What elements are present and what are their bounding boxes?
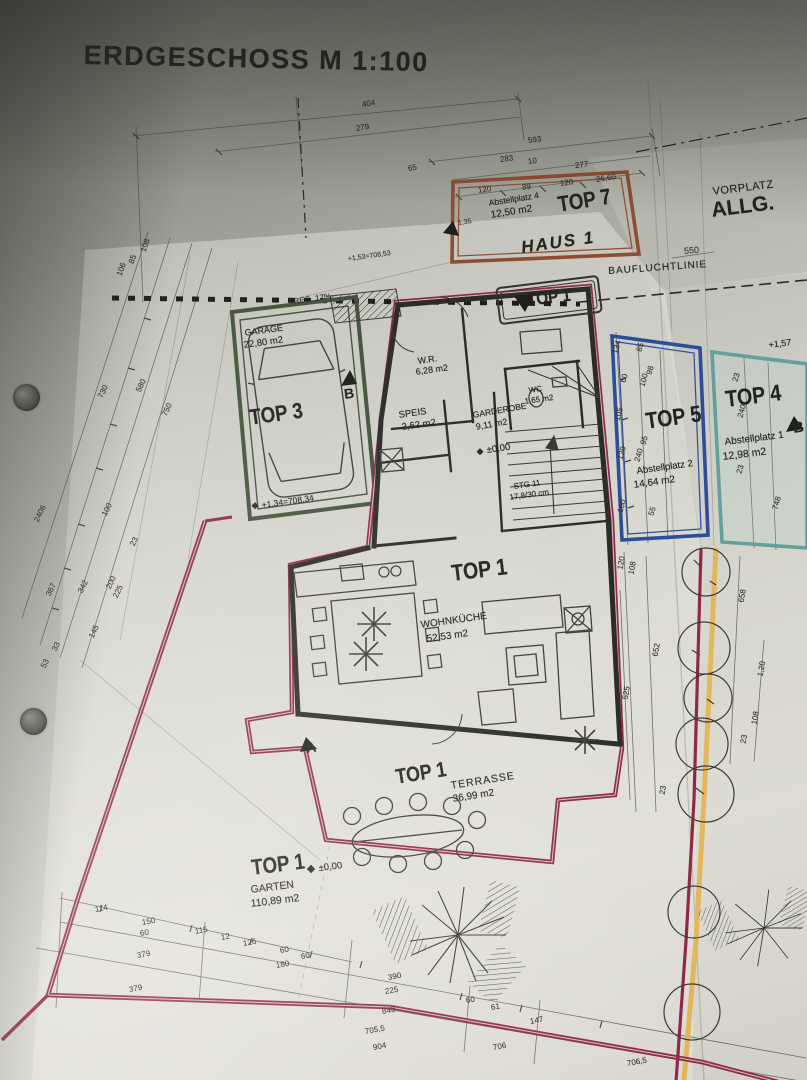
dimension-label: 652 [651, 643, 662, 658]
garten-name: TOP 1 [250, 848, 306, 880]
dimension-label: 23 [731, 372, 742, 383]
dimension-label: 705,5 [364, 1024, 385, 1036]
top3-name: TOP 3 [248, 398, 304, 431]
dimension-label: 98 [645, 365, 656, 376]
top1-main-room: WOHNKÜCHE [420, 611, 488, 631]
hole-punch [13, 384, 40, 411]
dimension-label: 730 [96, 384, 110, 400]
dimension-label: 10 [527, 156, 537, 166]
dimension-label: 1,20 [756, 660, 768, 677]
dimension-label: 33 [50, 641, 62, 653]
dimension-label: 367 [44, 582, 58, 598]
dimension-label: 126 [242, 937, 257, 948]
top4-name: TOP 4 [724, 379, 783, 413]
dimension-label: 904 [372, 1041, 387, 1052]
dimension-label: 23 [658, 785, 668, 795]
dimension-label: 100 [638, 372, 650, 387]
dimension-label: 23 [739, 734, 749, 744]
garderobe-area: 9,11 m2 [475, 416, 508, 431]
dimension-label: 105 [613, 406, 625, 421]
dimension-label: 550 [684, 245, 700, 256]
dimension-label: 706,5 [626, 1056, 647, 1068]
dimension-label: 750 [160, 402, 174, 418]
dimension-label: 65 [407, 163, 417, 173]
dimension-label: 60 [465, 995, 475, 1005]
dimension-label: +1,53=708,53 [348, 250, 392, 263]
dimension-label: 60 [619, 373, 630, 384]
garderobe-level: ±0,00 [486, 442, 511, 456]
dimension-label: 120 [477, 184, 491, 195]
dimension-label: 12 [220, 932, 230, 942]
dimension-label: 525 [621, 686, 632, 701]
dimension-label: 225 [384, 985, 399, 996]
dimension-label: 55 [647, 506, 658, 517]
hole-punch [20, 708, 47, 735]
top4-area: 12,98 m2 [722, 446, 767, 463]
dimension-label: 134 [611, 339, 623, 354]
dimension-label: 2406 [32, 504, 48, 524]
dimension-label: 108 [627, 561, 638, 576]
dimension-label: 390 [387, 971, 402, 982]
dimension-label: 1,35 [458, 218, 472, 227]
bauflucht-label: BAUFLUCHTLINIE [608, 259, 708, 277]
page-title: ERDGESCHOSS M 1:100 [83, 40, 429, 78]
section-marker-a: A [305, 739, 317, 756]
dimension-label: 114 [94, 903, 108, 914]
dimension-label: 120 [616, 445, 628, 460]
top1-main-area: 52,53 m2 [426, 628, 469, 645]
dimension-label: 580 [134, 378, 148, 394]
dimension-label: 95 [639, 435, 650, 446]
dimension-label: 53 [39, 658, 51, 670]
top5-area: 14,64 m2 [633, 474, 676, 491]
dimension-label: 60 [300, 951, 310, 961]
section-marker-b2: B [792, 418, 805, 436]
top4-room: Abstellplatz 1 [724, 430, 784, 448]
dimension-label: 279 [355, 122, 370, 133]
top7-name: TOP 7 [556, 184, 613, 218]
dimension-label: 180 [275, 959, 290, 970]
haus-label: HAUS 1 [520, 228, 596, 258]
dimension-label: 108 [139, 237, 152, 253]
dimension-label: 147 [529, 1015, 544, 1026]
garage-ramp-label: REG. 17% [293, 292, 332, 306]
dimension-label: 145 [87, 624, 101, 640]
dimension-label: 120 [559, 177, 573, 188]
plan-labels: ERDGESCHOSS M 1:100 VORPLATZ ALLG. BAUFL… [0, 0, 807, 1080]
dimension-label: 240 [633, 447, 645, 462]
top5-name: TOP 5 [644, 400, 703, 435]
dimension-label: 60 [139, 928, 149, 938]
dimension-label: 60 [279, 945, 289, 955]
dimension-label: 379 [128, 983, 143, 994]
section-marker-b1: B [343, 385, 355, 402]
dimension-label: 843 [381, 1005, 396, 1016]
dimension-label: 379 [136, 949, 151, 960]
dimension-label: 100 [100, 502, 114, 518]
top1-entry-name: TOP 1 [526, 285, 572, 311]
dimension-label: 26,60 [595, 172, 616, 184]
terrasse-name: TOP 1 [394, 758, 448, 790]
wc-name: WC [528, 384, 542, 395]
dimension-label: 61 [490, 1002, 500, 1012]
top3-level: +1,34=708,34 [261, 493, 314, 510]
top1-main-name: TOP 1 [450, 553, 509, 587]
dimension-label: 658 [737, 589, 748, 604]
dimension-label: 115 [194, 925, 208, 936]
dimension-label: 240 [736, 403, 748, 418]
garten-level: ±0,00 [318, 860, 343, 874]
dimension-label: 150 [141, 916, 156, 927]
dimension-label: 404 [361, 98, 376, 109]
dimension-label: 342 [76, 579, 90, 595]
dimension-label: 160 [616, 498, 628, 513]
dimension-label: 120 [616, 556, 627, 571]
dimension-label: 283 [499, 153, 513, 164]
dimension-label: 593 [527, 134, 541, 145]
floorplan-photo: ERDGESCHOSS M 1:100 VORPLATZ ALLG. BAUFL… [0, 0, 807, 1080]
dimension-label: 748 [771, 495, 783, 510]
dimension-label: 277 [574, 159, 588, 170]
top4-level: +1,57 [768, 337, 792, 350]
dimension-label: 106 [115, 261, 128, 277]
dimension-label: 108 [750, 711, 761, 726]
dimension-label: 85 [127, 254, 139, 265]
dimension-label: 23 [128, 536, 140, 548]
dimension-label: 89 [521, 182, 531, 192]
dimension-label: 23 [735, 464, 746, 475]
dimension-label: 706 [492, 1041, 507, 1052]
dimension-label: 85 [635, 342, 646, 353]
top5-room: Abstellplatz 2 [636, 458, 693, 477]
